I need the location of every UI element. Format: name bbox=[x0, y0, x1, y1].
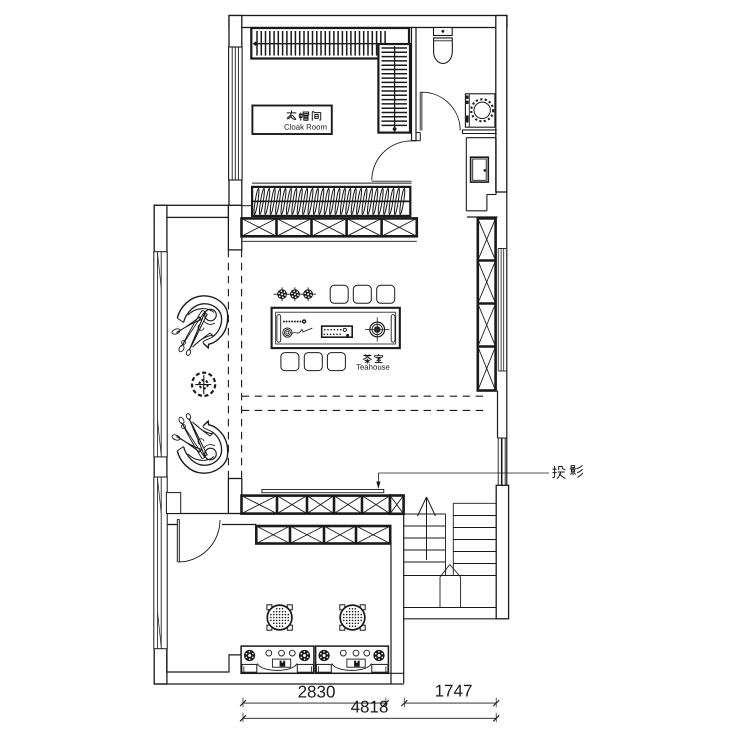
svg-text:Teahouse: Teahouse bbox=[356, 363, 390, 372]
svg-text:4818: 4818 bbox=[351, 697, 389, 716]
svg-text:Cloak Room: Cloak Room bbox=[284, 123, 327, 132]
svg-text:1747: 1747 bbox=[435, 681, 473, 700]
svg-text:2830: 2830 bbox=[298, 682, 336, 701]
